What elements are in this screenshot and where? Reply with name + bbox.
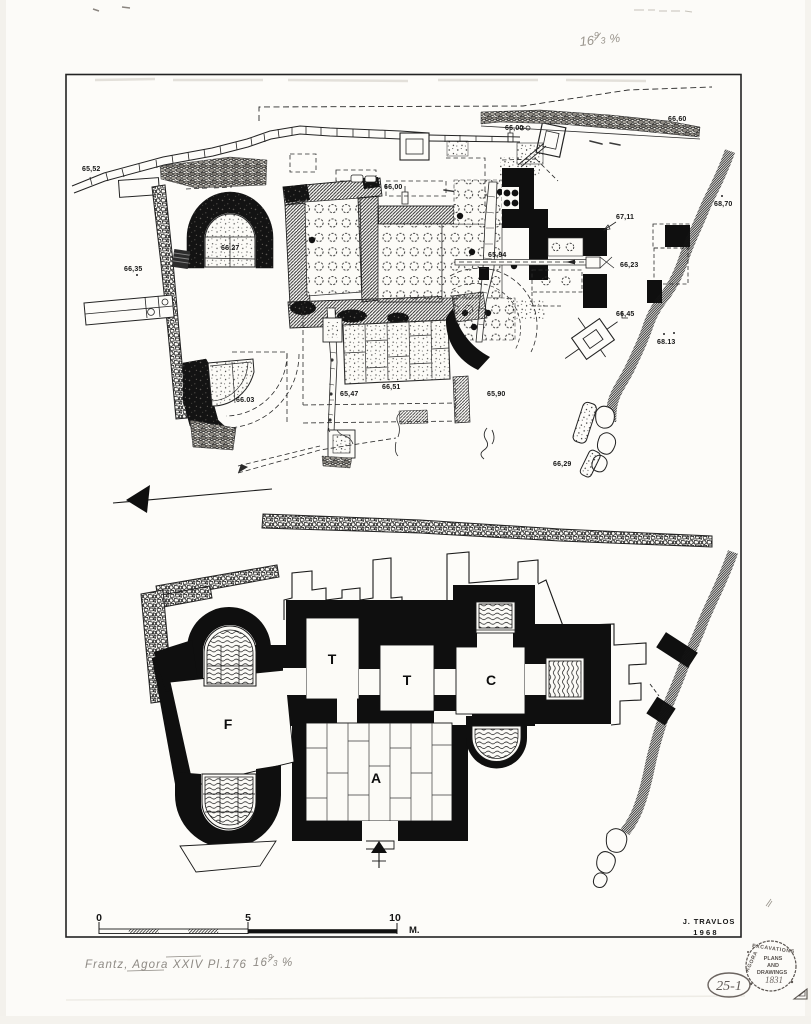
svg-text:68.13: 68.13 xyxy=(657,339,676,346)
svg-text:66,60: 66,60 xyxy=(668,116,687,123)
svg-text:%: % xyxy=(609,31,621,46)
svg-text:1831: 1831 xyxy=(765,975,783,985)
svg-text:67,11: 67,11 xyxy=(616,214,634,221)
svg-text:T: T xyxy=(403,672,412,688)
svg-text:66,23: 66,23 xyxy=(620,262,639,269)
svg-text:AND: AND xyxy=(767,963,779,969)
svg-text:66.03: 66.03 xyxy=(236,397,255,404)
svg-text:C: C xyxy=(486,672,496,688)
svg-text:PLANS: PLANS xyxy=(764,956,783,962)
svg-text:M.: M. xyxy=(409,925,420,936)
svg-text:5: 5 xyxy=(245,912,251,924)
svg-text:65,52: 65,52 xyxy=(82,166,101,173)
svg-text:T: T xyxy=(328,651,337,667)
svg-text:66.27: 66.27 xyxy=(221,245,240,252)
svg-text:66,00: 66,00 xyxy=(505,125,524,132)
svg-text:0: 0 xyxy=(96,912,102,924)
svg-text:25-1: 25-1 xyxy=(716,979,742,994)
svg-text:68,70: 68,70 xyxy=(714,201,733,208)
svg-text:J. TRAVLOS: J. TRAVLOS xyxy=(683,917,736,926)
svg-text:%: % xyxy=(282,957,293,969)
svg-text:16: 16 xyxy=(253,957,268,969)
svg-text:65,90: 65,90 xyxy=(487,391,506,398)
svg-text:66,35: 66,35 xyxy=(124,266,143,273)
svg-text:Frantz, Agora XXIV Pl.176: Frantz, Agora XXIV Pl.176 xyxy=(85,959,247,971)
svg-text:66,29: 66,29 xyxy=(553,461,572,468)
svg-text:3: 3 xyxy=(600,35,606,45)
svg-text:1968: 1968 xyxy=(693,928,719,937)
svg-text:65,94: 65,94 xyxy=(488,252,507,259)
svg-text:3: 3 xyxy=(273,959,279,968)
svg-text:F: F xyxy=(224,716,233,732)
svg-text:A: A xyxy=(371,770,381,786)
svg-text:66,00: 66,00 xyxy=(384,184,403,191)
svg-text:66,45: 66,45 xyxy=(616,311,635,318)
svg-text:66,51: 66,51 xyxy=(382,384,401,391)
svg-text:10: 10 xyxy=(389,912,401,924)
svg-text:65,47: 65,47 xyxy=(340,391,359,398)
